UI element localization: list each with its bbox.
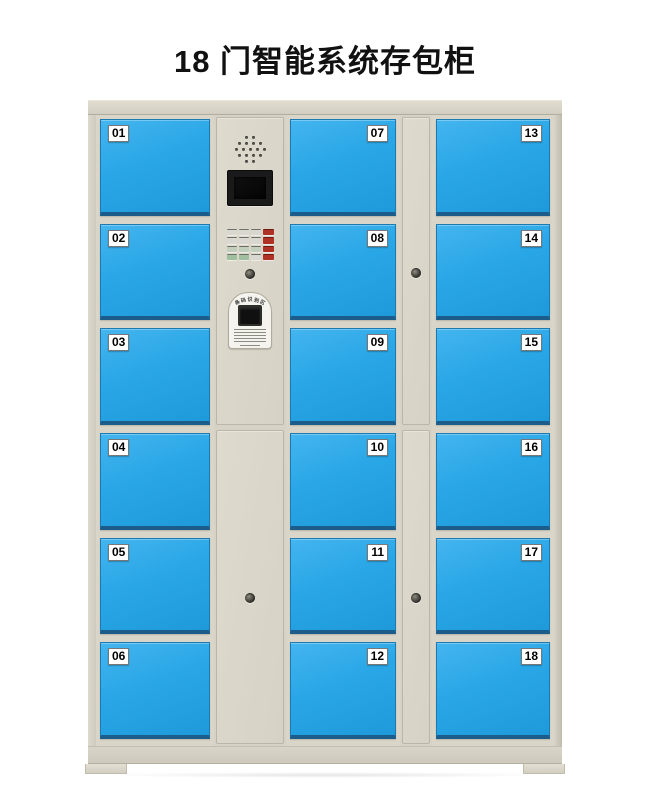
keypad-key[interactable]	[227, 246, 237, 252]
keypad-key[interactable]	[227, 229, 237, 235]
locker-door-03[interactable]: 03	[100, 328, 210, 425]
cabinet-body: 01 02 03 04 05 06 条码识别区	[88, 115, 562, 746]
cabinet-foot-right	[523, 764, 565, 774]
keypad-key[interactable]	[227, 237, 237, 243]
locker-door-08[interactable]: 08	[290, 224, 396, 321]
speaker-dot	[242, 148, 245, 151]
speaker-dot	[235, 148, 238, 151]
door-number-label: 09	[367, 334, 388, 351]
keyhole-icon[interactable]	[411, 268, 421, 278]
page: 18 门智能系统存包柜 01 02 03 04 05 06	[0, 0, 650, 790]
speaker-dot	[245, 160, 248, 163]
lock-stile	[400, 115, 432, 746]
door-number-label: 14	[521, 230, 542, 247]
speaker-dot	[252, 142, 255, 145]
speaker-dot	[263, 148, 266, 151]
speaker-dot	[238, 142, 241, 145]
keypad-key[interactable]	[263, 246, 273, 252]
lock-stile-lower-panel[interactable]	[402, 430, 430, 744]
scanner-label-char: 识	[247, 296, 252, 303]
door-column-left: 01 02 03 04 05 06	[96, 115, 214, 746]
scanner-label: 条码识别区	[235, 296, 264, 304]
keypad-key[interactable]	[227, 254, 237, 260]
keypad	[227, 229, 274, 260]
speaker-dot	[256, 148, 259, 151]
screen-glass	[234, 177, 266, 199]
scanner-instructions-text	[240, 345, 260, 348]
door-number-label: 02	[108, 230, 129, 247]
speaker-dot-row	[245, 136, 255, 139]
cabinet-foot-left	[85, 764, 127, 774]
door-column-right: 13 14 15 16 17 18	[432, 115, 554, 746]
scanner-window	[238, 305, 262, 325]
speaker-dot	[238, 154, 241, 157]
display-screen	[227, 170, 273, 206]
keyhole-icon[interactable]	[411, 593, 421, 603]
door-number-label: 11	[367, 544, 388, 561]
keypad-key[interactable]	[263, 229, 273, 235]
door-number-label: 08	[367, 230, 388, 247]
door-number-label: 04	[108, 439, 129, 456]
speaker-dot-row	[245, 160, 255, 163]
speaker-dot	[252, 136, 255, 139]
keypad-key[interactable]	[251, 246, 261, 252]
keyhole-icon[interactable]	[245, 269, 255, 279]
control-column-lower-door[interactable]	[216, 430, 284, 744]
page-title: 18 门智能系统存包柜	[0, 36, 650, 81]
scanner-instructions-text	[234, 329, 266, 344]
speaker-dot	[245, 154, 248, 157]
speaker-dot-row	[235, 148, 266, 151]
door-number-label: 10	[367, 439, 388, 456]
keypad-key[interactable]	[239, 246, 249, 252]
door-number-label: 01	[108, 125, 129, 142]
locker-door-16[interactable]: 16	[436, 433, 550, 530]
speaker-dot	[259, 154, 262, 157]
cabinet-top-rail	[88, 100, 562, 115]
door-number-label: 18	[521, 648, 542, 665]
keypad-key[interactable]	[251, 237, 261, 243]
control-column: 条码识别区	[214, 115, 286, 746]
keypad-key[interactable]	[251, 254, 261, 260]
door-number-label: 15	[521, 334, 542, 351]
control-panel: 条码识别区	[216, 117, 284, 425]
speaker-dot	[252, 160, 255, 163]
locker-cabinet: 01 02 03 04 05 06 条码识别区	[88, 100, 562, 764]
locker-door-02[interactable]: 02	[100, 224, 210, 321]
speaker-dot-row	[238, 154, 262, 157]
keypad-key[interactable]	[239, 254, 249, 260]
locker-door-18[interactable]: 18	[436, 642, 550, 739]
door-number-label: 06	[108, 648, 129, 665]
door-column-middle: 07 08 09 10 11 12	[286, 115, 400, 746]
locker-door-01[interactable]: 01	[100, 119, 210, 216]
door-number-label: 17	[521, 544, 542, 561]
keypad-key[interactable]	[239, 229, 249, 235]
door-number-label: 03	[108, 334, 129, 351]
locker-door-10[interactable]: 10	[290, 433, 396, 530]
speaker-dot	[252, 154, 255, 157]
locker-door-15[interactable]: 15	[436, 328, 550, 425]
locker-door-04[interactable]: 04	[100, 433, 210, 530]
cabinet-left-frame	[88, 115, 96, 746]
door-number-label: 12	[367, 648, 388, 665]
cabinet-base-rail	[88, 746, 562, 764]
locker-door-13[interactable]: 13	[436, 119, 550, 216]
locker-door-05[interactable]: 05	[100, 538, 210, 635]
door-number-label: 07	[367, 125, 388, 142]
speaker-dot	[245, 136, 248, 139]
lock-stile-upper-panel[interactable]	[402, 117, 430, 425]
speaker-grille-icon	[235, 136, 266, 163]
barcode-scanner: 条码识别区	[228, 292, 272, 349]
speaker-dot	[259, 142, 262, 145]
cabinet-right-frame	[554, 115, 562, 746]
keypad-key[interactable]	[239, 237, 249, 243]
scanner-label-char: 码	[241, 296, 248, 304]
keypad-key[interactable]	[263, 237, 273, 243]
speaker-dot-row	[238, 142, 262, 145]
door-number-label: 16	[521, 439, 542, 456]
locker-door-12[interactable]: 12	[290, 642, 396, 739]
door-number-label: 05	[108, 544, 129, 561]
locker-door-09[interactable]: 09	[290, 328, 396, 425]
door-number-label: 13	[521, 125, 542, 142]
speaker-dot	[249, 148, 252, 151]
speaker-dot	[245, 142, 248, 145]
keypad-key[interactable]	[251, 229, 261, 235]
locker-door-07[interactable]: 07	[290, 119, 396, 216]
locker-door-14[interactable]: 14	[436, 224, 550, 321]
locker-door-06[interactable]: 06	[100, 642, 210, 739]
keypad-key[interactable]	[263, 254, 273, 260]
locker-door-17[interactable]: 17	[436, 538, 550, 635]
locker-door-11[interactable]: 11	[290, 538, 396, 635]
keyhole-icon[interactable]	[245, 593, 255, 603]
